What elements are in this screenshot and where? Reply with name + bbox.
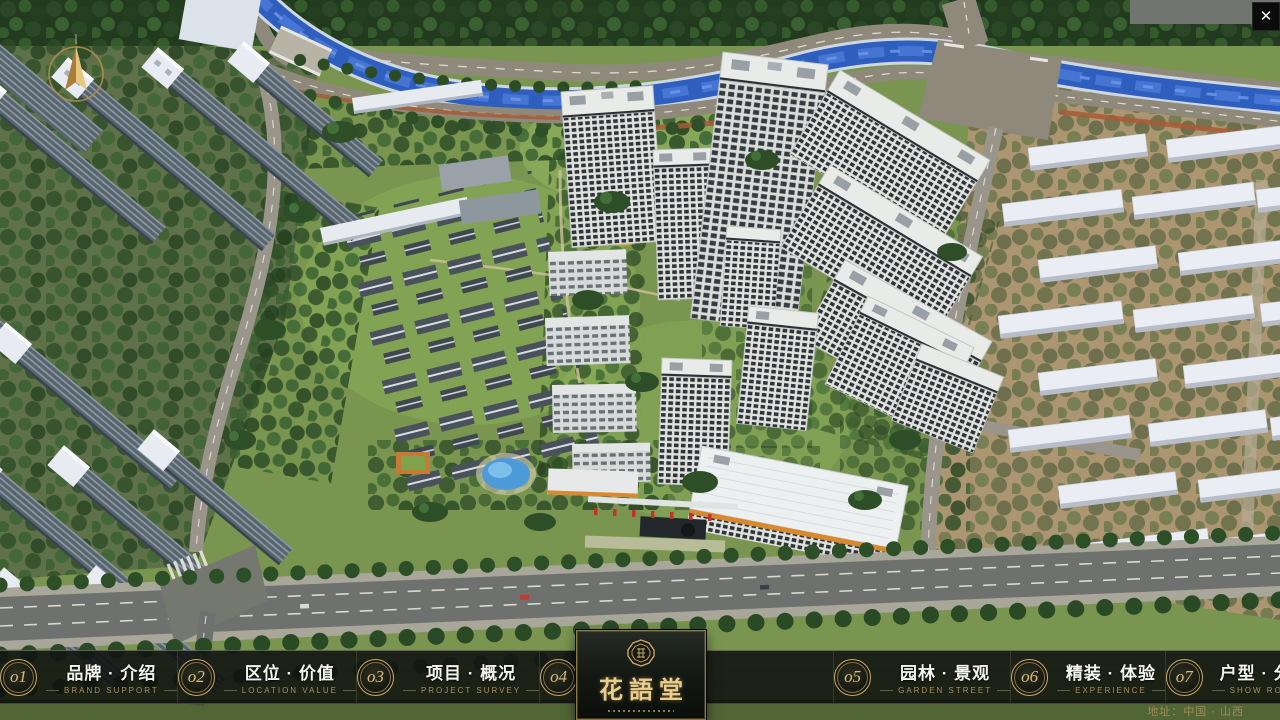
subtitle-line bbox=[526, 690, 539, 691]
menu-badge-icon: o1 bbox=[0, 659, 37, 696]
menu-title: 精装 · 体验 bbox=[1066, 659, 1156, 684]
subtitle-line bbox=[343, 690, 356, 691]
brand-seal-icon bbox=[627, 639, 655, 667]
menu-number: o6 bbox=[1021, 667, 1038, 687]
compass-icon bbox=[40, 32, 112, 108]
presentation-window: ✕ o1 品牌 · 介绍 BRAND SUPPORT o2 区位 · 价值 LO… bbox=[0, 0, 1280, 720]
subtitle-line bbox=[1057, 690, 1070, 691]
menu-badge-icon: o2 bbox=[178, 659, 215, 696]
menu-title: 区位 · 价值 bbox=[245, 659, 335, 684]
menu-title: 项目 · 概况 bbox=[426, 659, 516, 684]
menu-badge-icon: o6 bbox=[1011, 659, 1048, 696]
menu-title: 品牌 · 介绍 bbox=[66, 659, 156, 684]
subtitle-line bbox=[997, 690, 1010, 691]
menu-subtitle: GARDEN STREET bbox=[880, 686, 1010, 695]
menu-number: o2 bbox=[188, 667, 205, 687]
subtitle-line bbox=[1152, 690, 1165, 691]
menu-subtitle: SHOW ROOM bbox=[1212, 686, 1280, 695]
menu-title: 园林 · 景观 bbox=[900, 659, 990, 684]
menu-number: o5 bbox=[844, 667, 861, 687]
close-icon: ✕ bbox=[1260, 9, 1273, 24]
menu-logo-spacer bbox=[705, 651, 833, 703]
subtitle-line bbox=[1212, 690, 1225, 691]
subtitle-line bbox=[880, 690, 893, 691]
brand-subtitle-marks bbox=[608, 710, 674, 712]
menu-item-garden[interactable]: o5 园林 · 景观 GARDEN STREET bbox=[833, 651, 1010, 703]
menu-number: o4 bbox=[550, 667, 567, 687]
menu-badge-icon: o5 bbox=[834, 659, 871, 696]
menu-number: o1 bbox=[10, 667, 27, 687]
menu-item-location[interactable]: o2 区位 · 价值 LOCATION VALUE bbox=[177, 651, 356, 703]
menu-badge-icon: o3 bbox=[357, 659, 394, 696]
menu-subtitle: EXPERIENCE bbox=[1057, 686, 1165, 695]
subtitle-line bbox=[403, 690, 416, 691]
project-address: 地址：中国 · 山西 bbox=[1147, 703, 1244, 719]
menu-item-project[interactable]: o3 项目 · 概况 PROJECT SURVEY bbox=[356, 651, 539, 703]
subtitle-line bbox=[46, 690, 59, 691]
menu-title: 户型 · 分布 bbox=[1220, 659, 1280, 684]
menu-item-interior[interactable]: o6 精装 · 体验 EXPERIENCE bbox=[1010, 651, 1165, 703]
menu-item-floorplans[interactable]: o7 户型 · 分布 SHOW ROOM bbox=[1165, 651, 1280, 703]
brand-logo-panel[interactable]: 花語堂 bbox=[576, 630, 706, 720]
menu-badge-icon: o4 bbox=[540, 659, 577, 696]
menu-item-brand[interactable]: o1 品牌 · 介绍 BRAND SUPPORT bbox=[0, 651, 177, 703]
subtitle-line bbox=[164, 690, 177, 691]
menu-subtitle: LOCATION VALUE bbox=[224, 686, 356, 695]
brand-name: 花語堂 bbox=[593, 670, 689, 705]
menu-number: o3 bbox=[367, 667, 384, 687]
menu-subtitle: BRAND SUPPORT bbox=[46, 686, 177, 695]
subtitle-line bbox=[224, 690, 237, 691]
menu-subtitle: PROJECT SURVEY bbox=[403, 686, 539, 695]
close-button[interactable]: ✕ bbox=[1252, 2, 1280, 31]
menu-number: o7 bbox=[1176, 667, 1193, 687]
aerial-site-plan[interactable] bbox=[0, 0, 1280, 720]
menu-badge-icon: o7 bbox=[1166, 659, 1203, 696]
